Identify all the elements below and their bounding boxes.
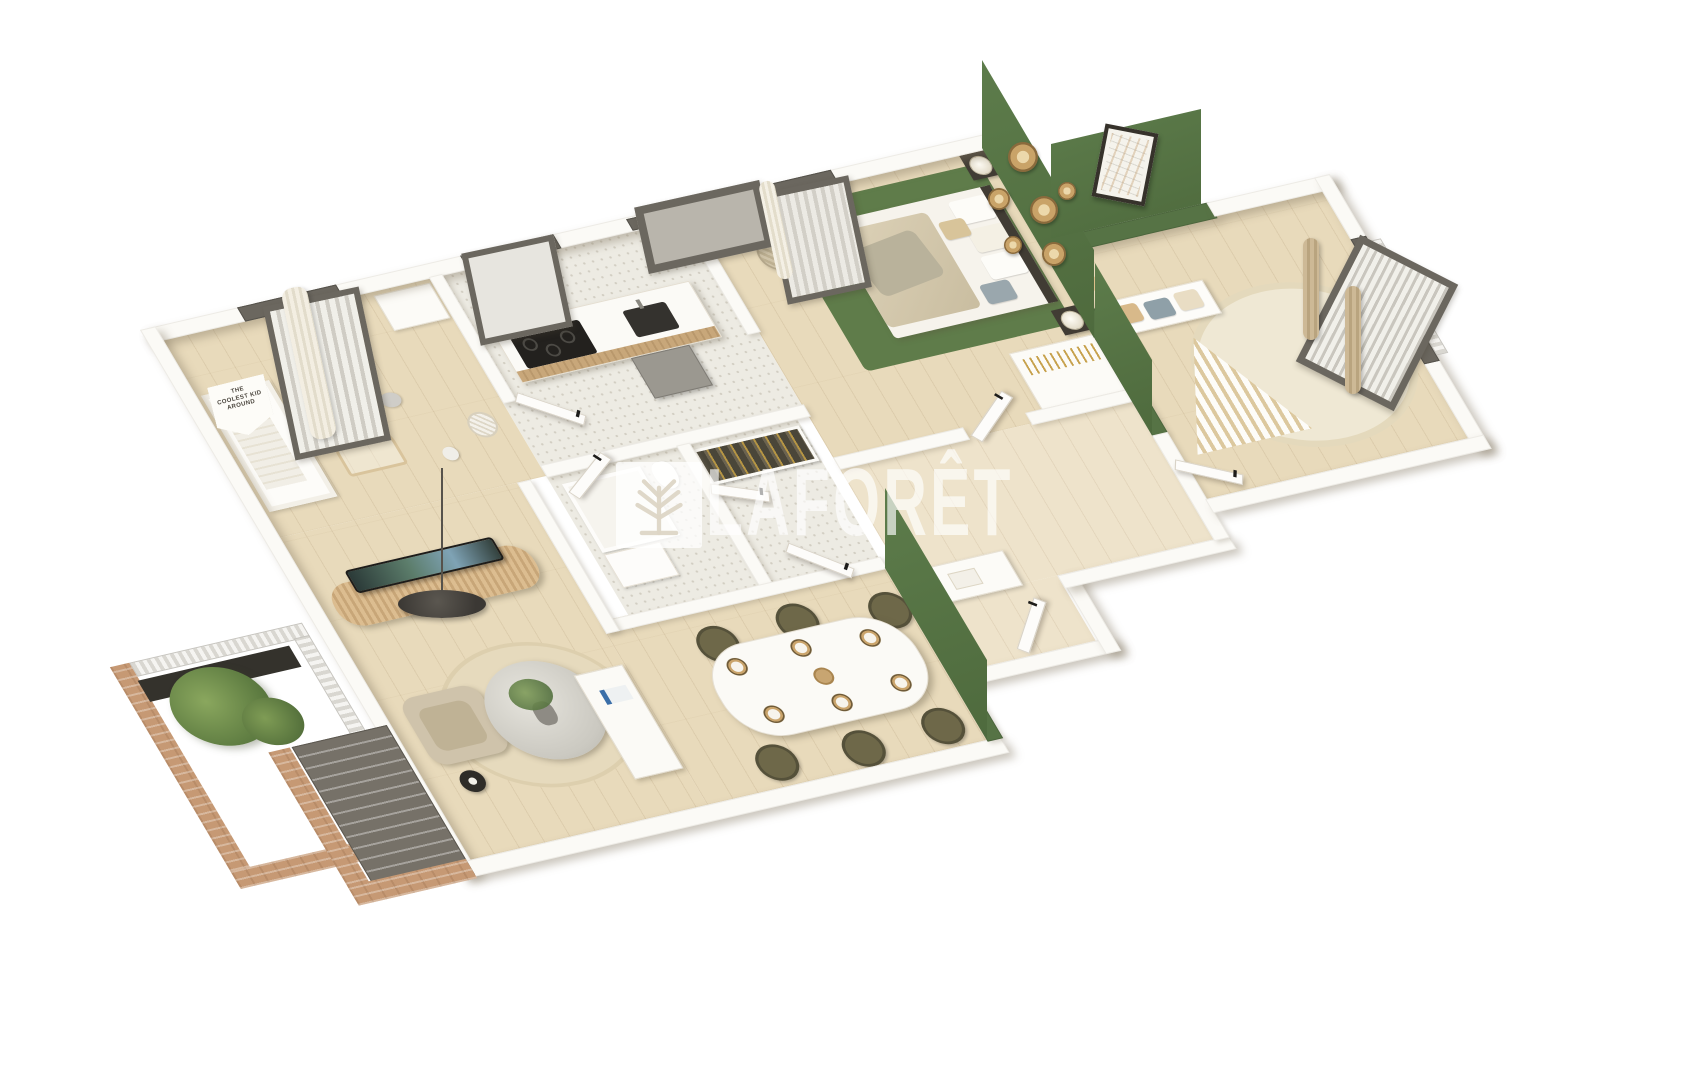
desk-papers — [947, 568, 984, 590]
cup — [467, 777, 479, 786]
burner — [557, 329, 578, 344]
floor-plan-stage: THE COOLEST KID AROUND LAFORÊT — [0, 0, 1692, 1080]
place-setting — [886, 672, 916, 694]
gold-hangers — [1022, 342, 1105, 375]
woven-wall-plate — [1058, 182, 1076, 200]
bench-pillow — [1172, 288, 1206, 311]
bench-pillow — [1110, 302, 1146, 325]
framed-art — [1091, 124, 1158, 207]
place-setting — [722, 656, 752, 678]
burner — [543, 342, 564, 357]
bench-pillow — [1142, 297, 1178, 320]
bed-pillow-accent — [978, 279, 1019, 305]
place-setting — [786, 637, 816, 659]
sink — [622, 301, 680, 337]
book — [599, 685, 634, 705]
place-setting — [855, 627, 885, 649]
pitcher — [810, 666, 838, 687]
armchair-seat — [416, 699, 491, 753]
burner — [520, 337, 541, 352]
woven-wall-plate — [1008, 142, 1038, 172]
place-setting — [759, 703, 789, 725]
desk-lamp — [921, 575, 942, 590]
place-setting — [827, 691, 857, 713]
art-strokes — [1101, 133, 1149, 197]
